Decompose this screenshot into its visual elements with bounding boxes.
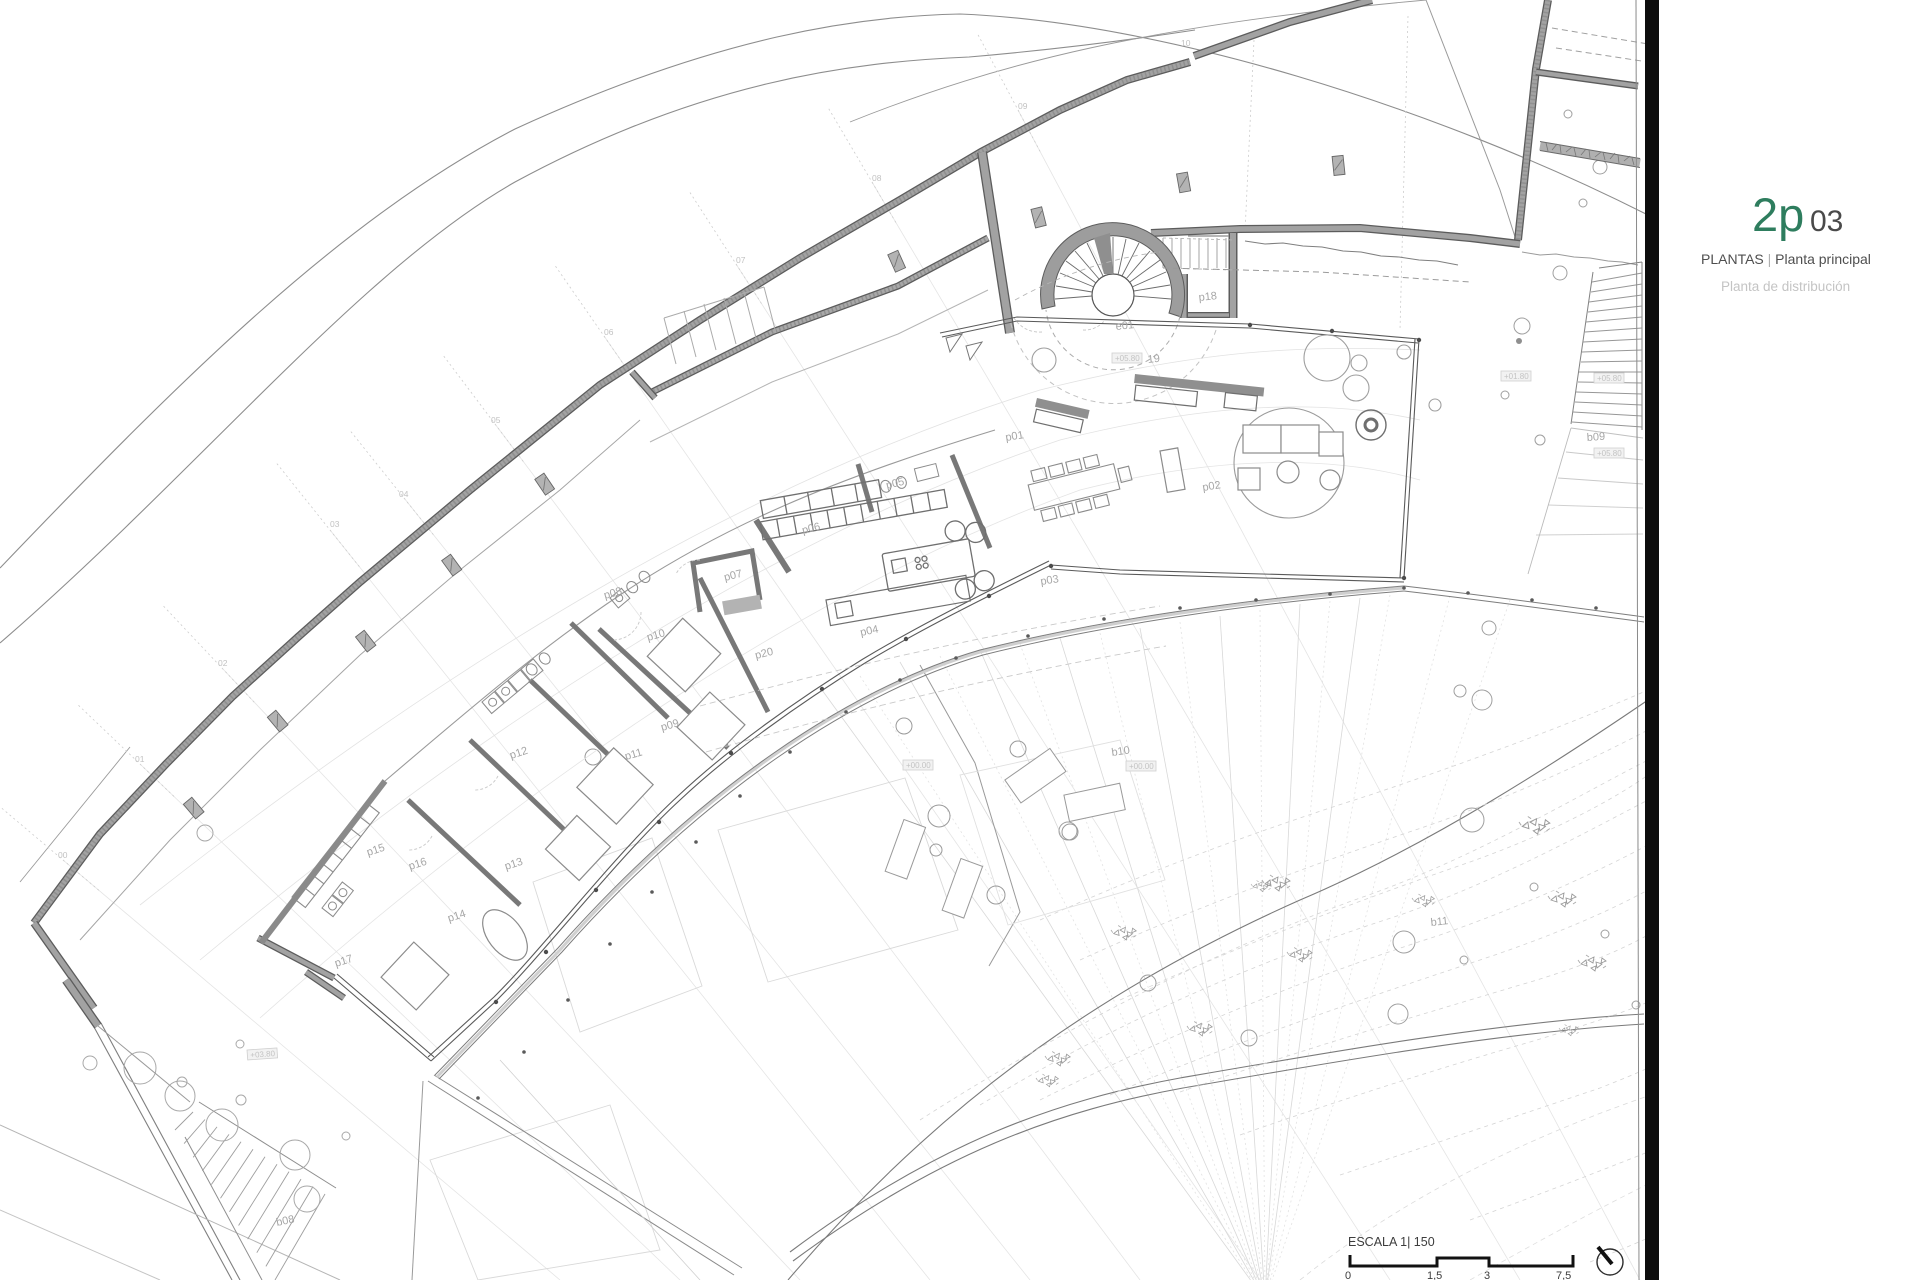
svg-text:19: 19 [1147, 353, 1160, 366]
svg-text:07: 07 [736, 255, 746, 265]
svg-text:+03.80: +03.80 [250, 1049, 276, 1060]
svg-text:+05.80: +05.80 [1597, 449, 1622, 458]
svg-text:03: 03 [330, 519, 340, 529]
svg-text:b09: b09 [1586, 431, 1605, 444]
svg-text:02: 02 [218, 658, 228, 668]
svg-text:06: 06 [604, 327, 614, 337]
svg-text:08: 08 [872, 173, 882, 183]
svg-text:09: 09 [1018, 101, 1028, 111]
svg-text:3: 3 [1484, 1270, 1490, 1280]
svg-text:1,5: 1,5 [1427, 1270, 1442, 1280]
svg-text:01: 01 [135, 754, 145, 764]
svg-text:b10: b10 [1111, 745, 1131, 759]
svg-text:ESCALA 1| 150: ESCALA 1| 150 [1348, 1235, 1435, 1249]
svg-text:0: 0 [1345, 1270, 1351, 1280]
svg-text:+00.00: +00.00 [1129, 762, 1154, 771]
svg-text:03: 03 [1810, 205, 1843, 238]
svg-text:+00.00: +00.00 [906, 761, 931, 770]
svg-text:p18: p18 [1198, 290, 1218, 304]
svg-text:Planta de distribución: Planta de distribución [1721, 279, 1850, 294]
svg-text:PLANTAS | Planta principal: PLANTAS | Planta principal [1701, 251, 1871, 267]
svg-text:10: 10 [1181, 38, 1191, 48]
svg-text:00: 00 [58, 850, 68, 860]
svg-text:+01.80: +01.80 [1504, 372, 1529, 381]
svg-text:2p: 2p [1752, 188, 1804, 241]
svg-text:+05.80: +05.80 [1597, 374, 1622, 383]
svg-text:e01: e01 [1115, 319, 1135, 333]
svg-text:b11: b11 [1430, 915, 1449, 929]
svg-text:05: 05 [491, 415, 501, 425]
svg-text:+05.80: +05.80 [1115, 354, 1140, 363]
svg-text:7,5: 7,5 [1556, 1270, 1571, 1280]
svg-text:04: 04 [399, 489, 409, 499]
